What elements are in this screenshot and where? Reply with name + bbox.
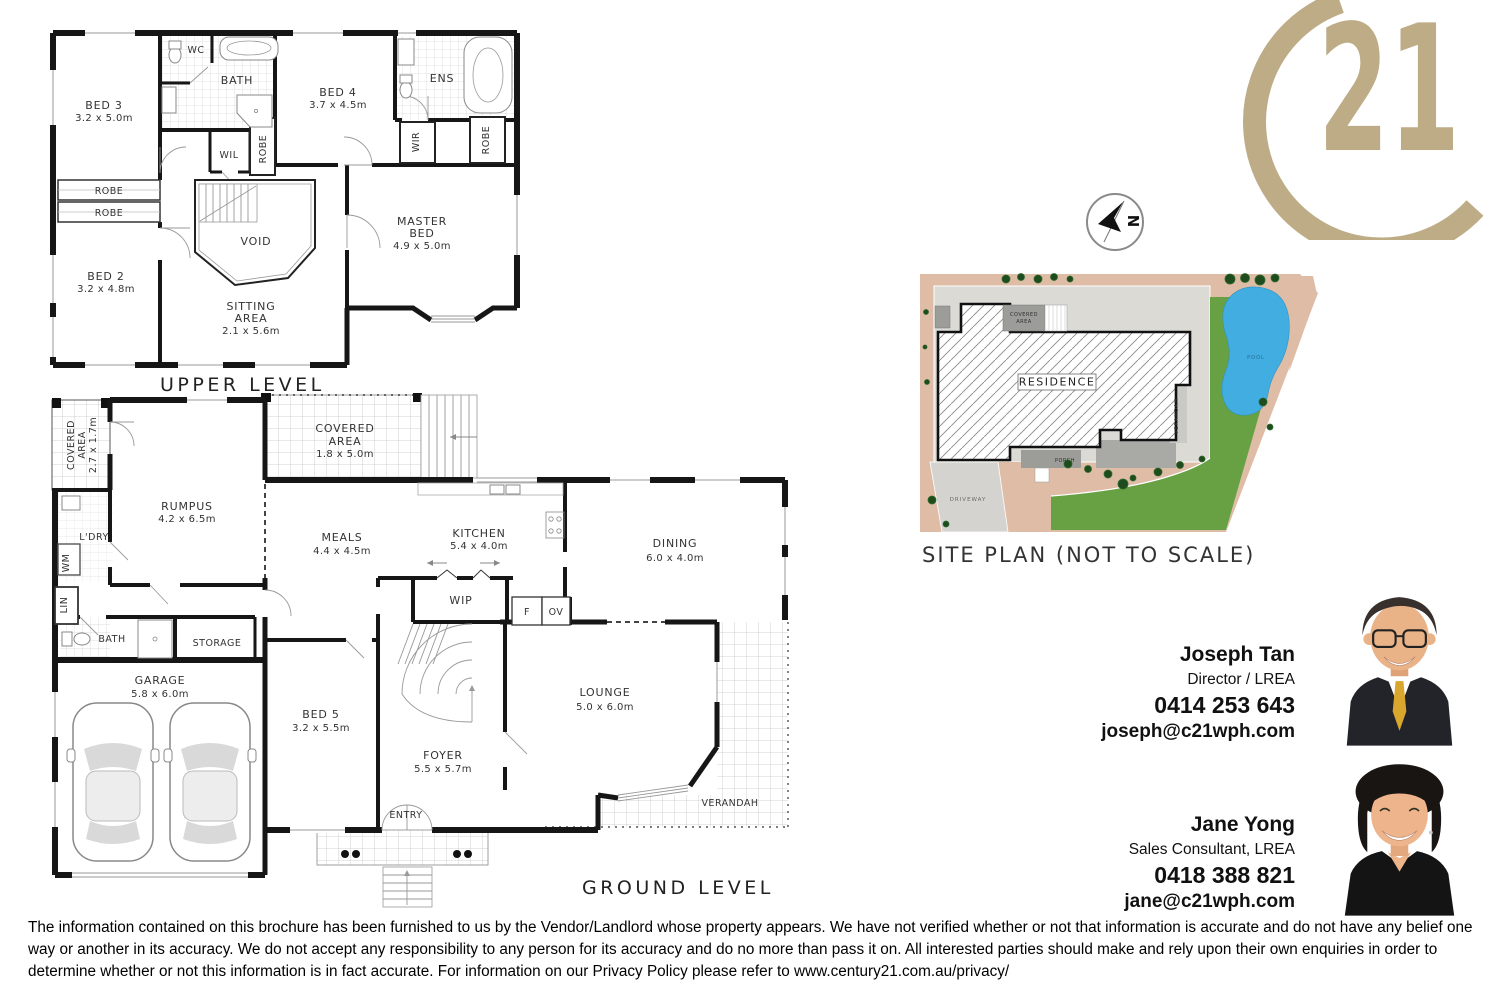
label-bed2: BED 2 [87,270,124,283]
ground-stairs-foyer [398,624,475,722]
label-bed5-dims: 3.2 x 5.5m [292,723,350,734]
label-site-covered-2: AREA [1016,319,1032,325]
label-sitting-dims: 2.1 x 5.6m [222,326,280,337]
label-covered-top-1: COVERED [315,422,374,435]
label-verandah: VERANDAH [701,798,758,809]
label-lin: LIN [59,597,70,614]
label-wc: WC [187,45,204,56]
label-wip: WIP [449,594,472,607]
label-site-pool: POOL [1247,355,1265,361]
label-wir: WIR [411,132,422,152]
agent-card-jane: Jane Yong Sales Consultant, LREA 0418 38… [995,812,1295,915]
agent-photo-joseph [1337,582,1462,748]
logo-number: 21 [1318,0,1460,192]
agent-photo-jane [1337,752,1462,918]
label-bed3: BED 3 [85,99,122,112]
label-fridge: F [524,607,530,618]
ground-level-floorplan: COVERED AREA 2.7 x 1.7m RUMPUS 4.2 x 6.5… [50,392,790,917]
disclaimer-text: The information contained on this brochu… [28,917,1475,982]
label-meals: MEALS [321,531,362,544]
north-compass-icon: N [1083,190,1147,254]
label-covered-left-dims: 2.7 x 1.7m [88,417,99,473]
site-plan: RESIDENCE COVERED AREA VERANDAH PORCH DR… [918,272,1323,534]
agent-email[interactable]: joseph@c21wph.com [995,719,1295,745]
label-entry: ENTRY [389,810,422,821]
agent-name: Jane Yong [995,812,1295,838]
century21-logo: 21 [1228,0,1488,240]
label-master-2: BED [409,227,434,240]
label-ens: ENS [430,72,455,85]
label-garage-dims: 5.8 x 6.0m [131,689,189,700]
agent-card-joseph: Joseph Tan Director / LREA 0414 253 643 … [995,642,1295,745]
upper-void-stairs [195,180,315,285]
label-robe-shelf2: ROBE [95,208,124,219]
label-bed5: BED 5 [302,708,339,721]
svg-text:N: N [1124,215,1142,228]
agent-title: Director / LREA [995,668,1295,692]
label-site-verandah: VERANDAH [1174,398,1180,434]
label-rumpus: RUMPUS [161,500,213,513]
label-residence: RESIDENCE [1019,376,1096,389]
site-terrace [1096,440,1176,468]
label-dining: DINING [653,537,698,550]
site-covered-small [935,306,950,328]
label-site-covered-1: COVERED [1010,312,1038,318]
label-dining-dims: 6.0 x 4.0m [646,553,704,564]
label-master-dims: 4.9 x 5.0m [393,241,451,252]
label-void: VOID [241,235,272,248]
label-garage: GARAGE [135,674,186,687]
label-bed4: BED 4 [319,86,356,99]
label-kitchen-dims: 5.4 x 4.0m [450,541,508,552]
label-covered-left-1: COVERED [66,420,77,470]
agent-title: Sales Consultant, LREA [995,838,1295,862]
agent-phone[interactable]: 0418 388 821 [995,862,1295,889]
brochure-page: BED 3 3.2 x 5.0m WC BATH BED 4 3.7 x 4.5… [0,0,1500,1000]
upper-level-floorplan: BED 3 3.2 x 5.0m WC BATH BED 4 3.7 x 4.5… [50,25,520,370]
agent-phone[interactable]: 0414 253 643 [995,692,1295,719]
site-porch-steps [1035,468,1049,482]
label-covered-top-dims: 1.8 x 5.0m [316,449,374,460]
label-ldry: L'DRY [79,532,109,543]
label-foyer-dims: 5.5 x 5.7m [414,764,472,775]
upper-bath-floors [160,33,517,130]
label-bed2-dims: 3.2 x 4.8m [77,284,135,295]
pool [1222,287,1289,415]
site-covered-area [1003,305,1045,331]
agent-email[interactable]: jane@c21wph.com [995,889,1295,915]
label-robe-right: ROBE [481,126,492,155]
label-bed3-dims: 3.2 x 5.0m [75,113,133,124]
site-plan-title: SITE PLAN (NOT TO SCALE) [922,543,1255,567]
label-oven: OV [549,607,564,618]
label-lounge: LOUNGE [580,686,631,699]
ground-level-title: GROUND LEVEL [582,877,774,899]
label-lounge-dims: 5.0 x 6.0m [576,702,634,713]
label-covered-top-2: AREA [329,435,362,448]
label-storage: STORAGE [193,638,242,649]
label-bed4-dims: 3.7 x 4.5m [309,100,367,111]
label-wm: WM [61,554,72,573]
label-robe-shelf1: ROBE [95,186,124,197]
label-meals-dims: 4.4 x 4.5m [313,546,371,557]
label-bath: BATH [221,74,253,87]
agent-name: Joseph Tan [995,642,1295,668]
label-bath-ground: BATH [98,634,125,645]
label-covered-left-2: AREA [77,431,88,459]
label-wil: WIL [220,150,239,161]
label-site-porch: PORCH [1055,458,1075,464]
label-robe-mid: ROBE [258,135,269,164]
label-sitting-2: AREA [235,312,268,325]
label-rumpus-dims: 4.2 x 6.5m [158,514,216,525]
label-site-driveway: DRIVEWAY [950,497,987,503]
label-kitchen: KITCHEN [452,527,505,540]
site-steps [1045,305,1067,331]
label-foyer: FOYER [423,749,463,762]
